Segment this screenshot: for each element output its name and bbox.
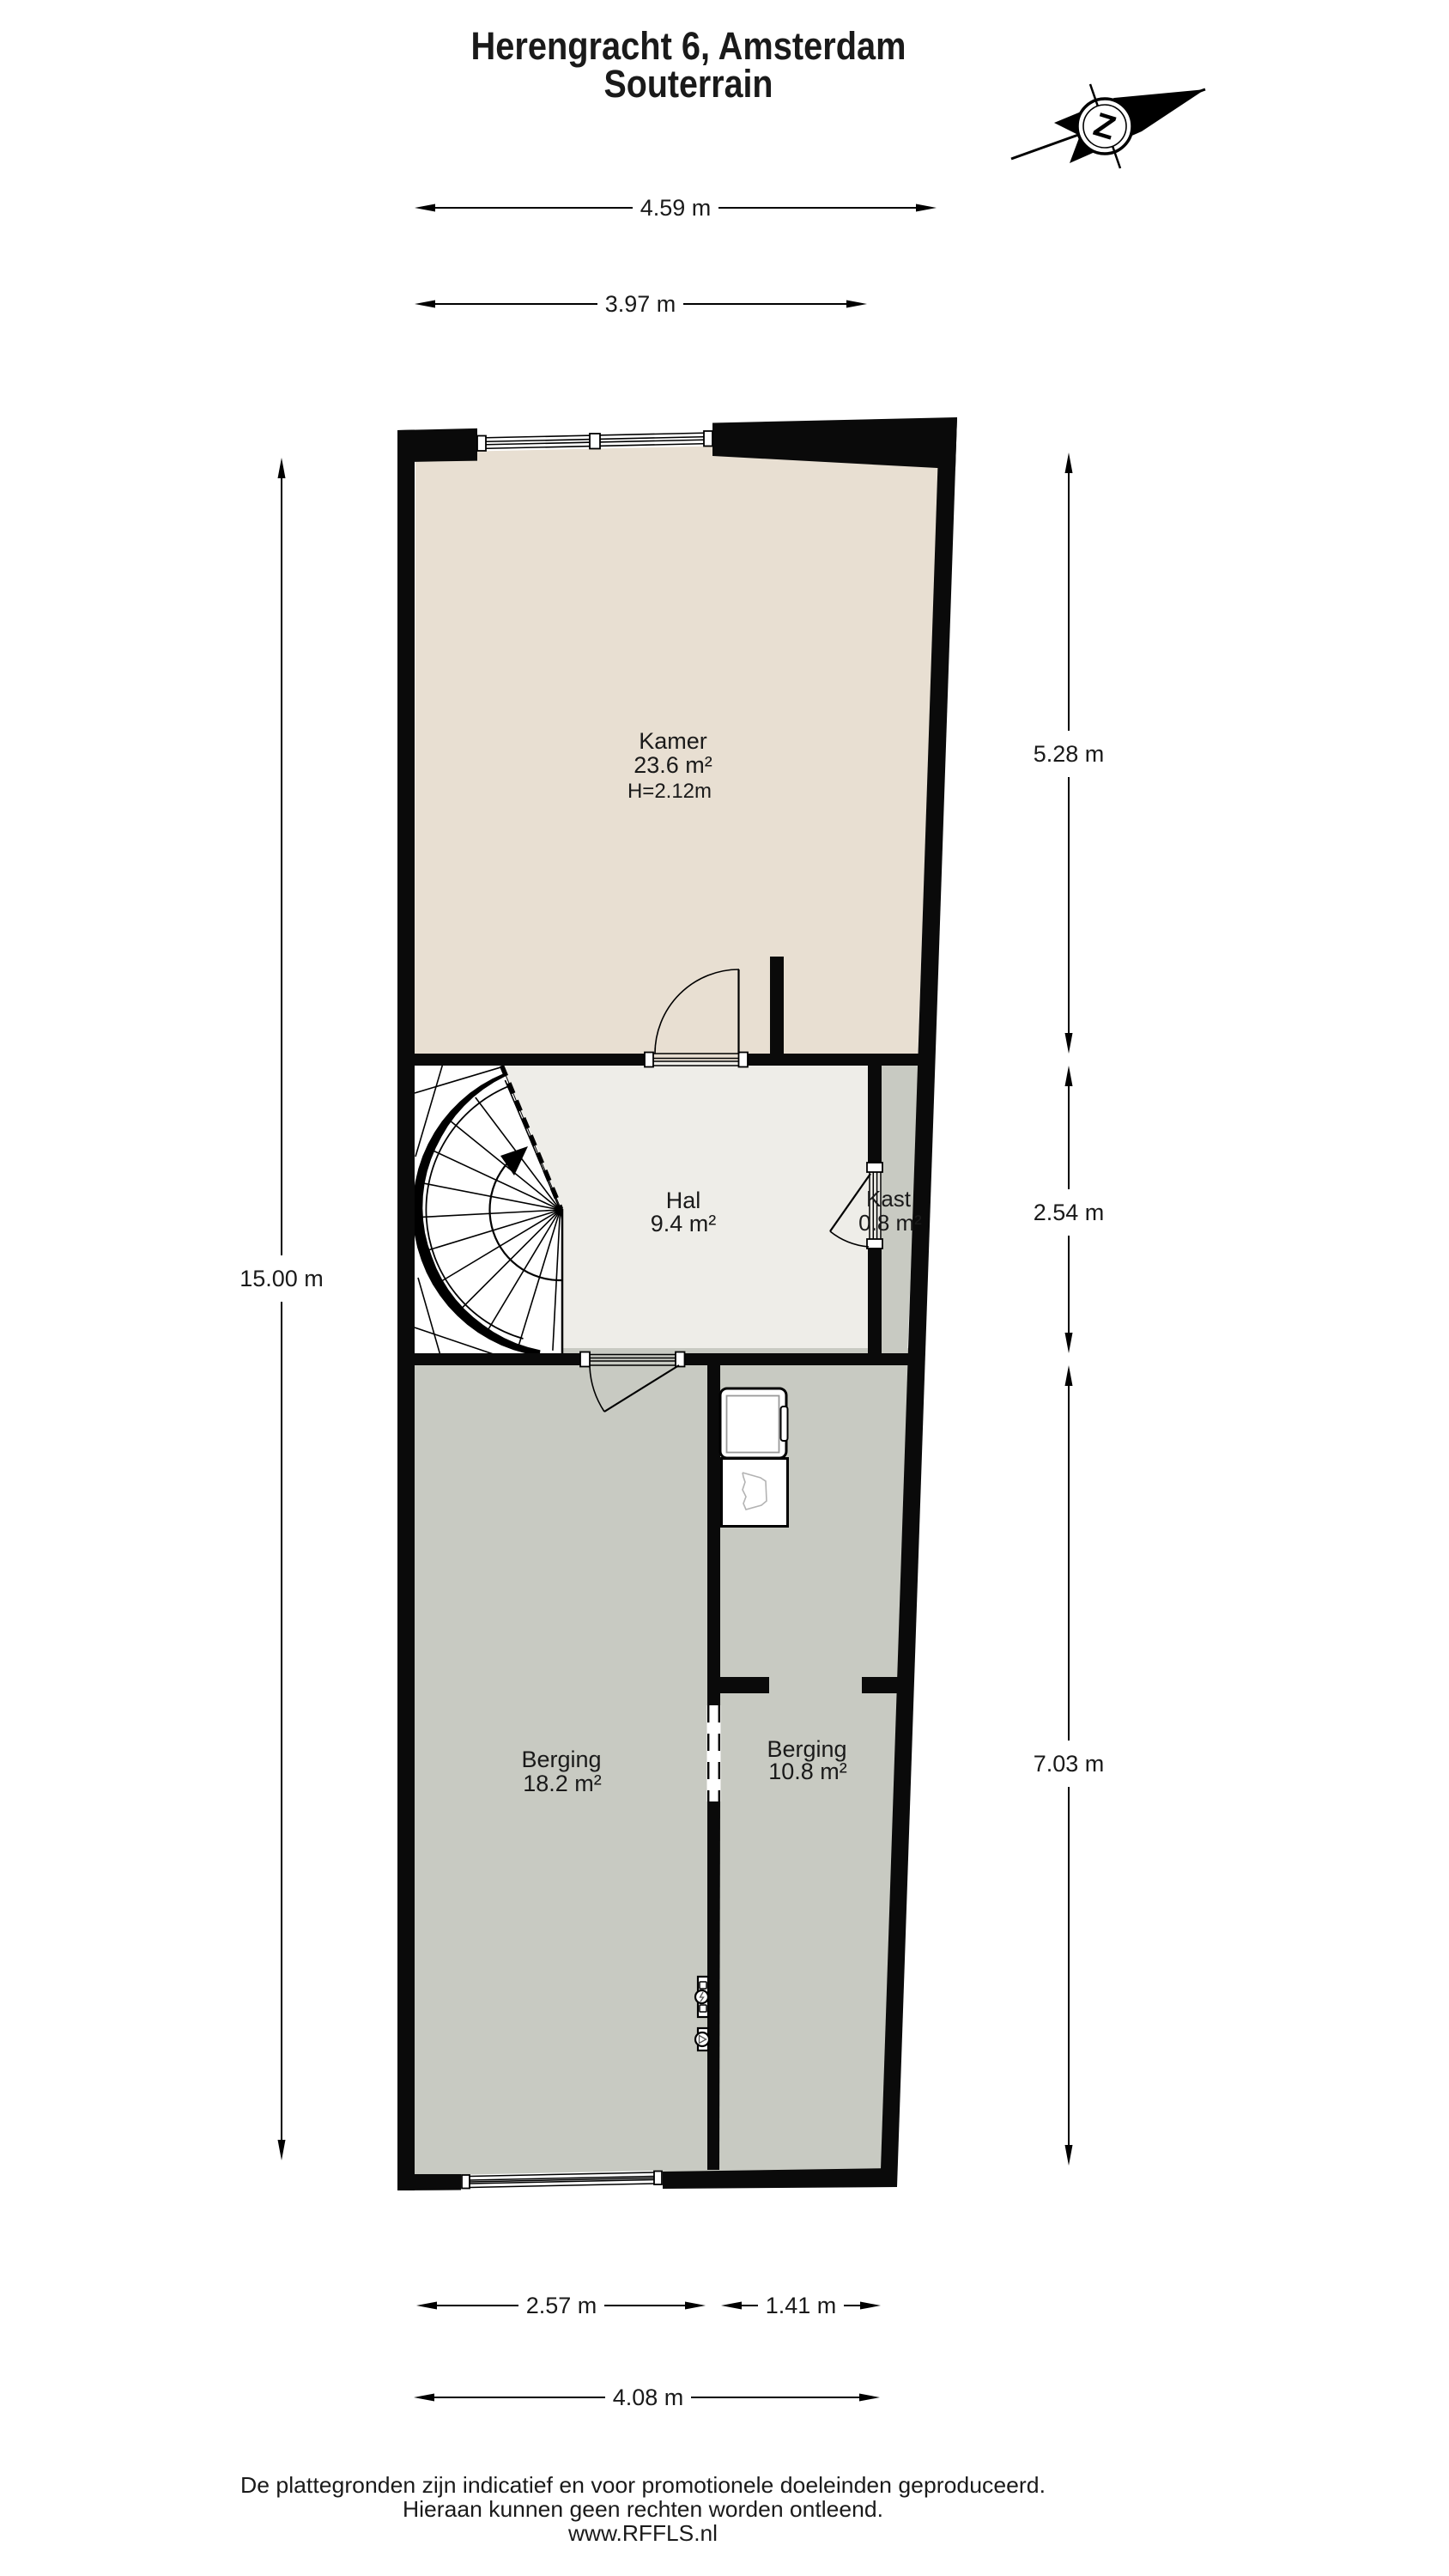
svg-text:15.00 m: 15.00 m (239, 1266, 324, 1291)
svg-text:3.97 m: 3.97 m (605, 291, 676, 317)
svg-text:5.28 m: 5.28 m (1034, 741, 1105, 767)
svg-text:2.54 m: 2.54 m (1034, 1200, 1105, 1225)
svg-text:23.6 m²: 23.6 m² (634, 752, 712, 778)
svg-text:Souterrain: Souterrain (604, 62, 773, 106)
svg-text:4.59 m: 4.59 m (640, 195, 712, 221)
svg-text:10.8 m²: 10.8 m² (768, 1759, 847, 1784)
svg-text:Berging: Berging (521, 1747, 601, 1772)
svg-text:Kast: Kast (866, 1186, 912, 1212)
svg-text:2.57 m: 2.57 m (526, 2293, 597, 2318)
svg-text:4.08 m: 4.08 m (613, 2385, 684, 2410)
svg-text:H=2.12m: H=2.12m (627, 780, 712, 803)
svg-text:9.4 m²: 9.4 m² (651, 1211, 717, 1236)
svg-text:18.2 m²: 18.2 m² (523, 1771, 602, 1796)
svg-text:Hal: Hal (666, 1188, 701, 1213)
svg-text:De plattegronden zijn indicati: De plattegronden zijn indicatief en voor… (240, 2472, 1046, 2498)
svg-text:Hieraan kunnen geen rechten wo: Hieraan kunnen geen rechten worden ontle… (403, 2496, 883, 2522)
svg-text:7.03 m: 7.03 m (1034, 1751, 1105, 1777)
svg-text:1.41 m: 1.41 m (766, 2293, 837, 2318)
svg-text:Kamer: Kamer (639, 728, 707, 754)
svg-text:www.RFFLS.nl: www.RFFLS.nl (567, 2520, 718, 2546)
svg-text:0.8 m²: 0.8 m² (858, 1210, 922, 1236)
